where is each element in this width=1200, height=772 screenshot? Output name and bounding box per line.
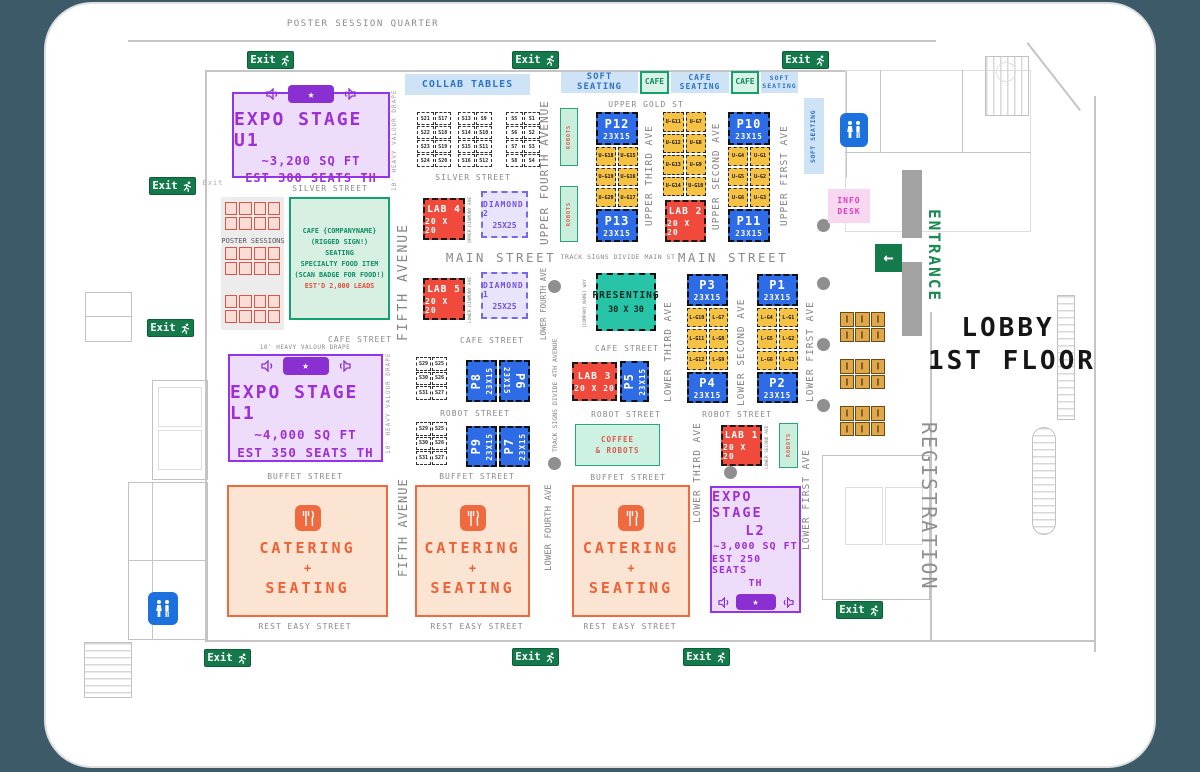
exit-label: Exit <box>250 54 275 66</box>
booth-p12: P1223X15 <box>596 112 638 145</box>
lower-fourth-ave-label: LOWER FOURTH AVE <box>544 495 554 561</box>
rooms-left <box>85 292 132 342</box>
info-desk-label: DESK <box>837 207 860 216</box>
booth-name: P9 <box>469 438 483 454</box>
junction-dot <box>724 466 737 479</box>
lab-name: LAB 1 <box>725 430 759 441</box>
booth-S24: S24 <box>417 154 434 167</box>
poster-board <box>239 217 251 230</box>
booth-size: 23X15 <box>764 293 792 302</box>
speaker-icon <box>338 360 351 372</box>
booth-U-G15: U-G15 <box>618 147 638 166</box>
booth-lab1: LAB 120 X 20 <box>721 425 762 466</box>
robot-street-label: ROBOT STREET <box>702 410 772 419</box>
booth-S23: S23 <box>417 140 434 153</box>
booth-p5: P523X15 <box>620 361 649 402</box>
upper-second-ave-label: UPPER SECOND AVE <box>711 118 722 234</box>
booth-p8: P823X15 <box>466 360 497 402</box>
booth-name: P2 <box>769 376 785 390</box>
poster-board <box>254 262 266 275</box>
booth-size: 23X15 <box>502 367 511 395</box>
speaker-icon <box>261 360 274 372</box>
junction-dot <box>817 277 830 290</box>
lobby-line2: 1ST FLOOR <box>928 345 1088 378</box>
booth-diamond1: DIAMOND 125X25 <box>481 272 528 319</box>
exit-sign: Exit <box>512 51 559 69</box>
robots-zone: ROBOTS <box>560 186 578 242</box>
lobby-line1: LOBBY <box>928 312 1088 345</box>
catering-plus: + <box>627 561 634 575</box>
poster-board <box>254 217 266 230</box>
expo-stage-l2: EXPO STAGE L2 ~3,000 SQ FT EST 250 SEATS… <box>710 486 801 613</box>
lower-diamond-ave-label: LOWER DIAMOND AVE <box>468 278 473 322</box>
catering-zone: CATERING + SEATING <box>572 485 690 617</box>
s-booth-grid-robot-a: S29S25S30S26S31S27 <box>416 357 447 400</box>
g-booth-grid-upper-left: U-G18U-G15U-G19U-G16U-G20U-G17 <box>596 147 638 207</box>
poster-board <box>268 202 280 215</box>
poster-board <box>225 295 237 308</box>
lower-second-ave-label: LOWER SECOND AVE <box>765 424 770 470</box>
speaker-icon <box>782 597 794 608</box>
poster-grid <box>225 202 280 230</box>
stage-sqft: ~4,000 SQ FT <box>254 427 356 442</box>
cafe-seating-label: CAFE SEATING <box>671 74 729 92</box>
exit-sign: Exit <box>147 319 194 337</box>
booth-p3: P323X15 <box>687 274 728 306</box>
rest-easy-street-label: REST EASY STREET <box>258 622 351 631</box>
catering-label: CATERING <box>259 539 355 557</box>
booth-S31: S31 <box>416 451 431 465</box>
booth-U-G4: U-G4 <box>728 147 748 166</box>
cafe-leads-line: EST'D 2,000 LEADS <box>305 282 375 290</box>
s-booth-grid-robot-b: S29S25S30S26S31S27 <box>416 422 447 465</box>
expo-stage-l1: ★ EXPO STAGE L1 ~4,000 SQ FT EST 350 SEA… <box>228 354 383 462</box>
running-man-icon <box>180 323 191 334</box>
soft-seating-label: SOFT SEATING <box>561 73 638 93</box>
booth-p1: P123X15 <box>757 274 798 306</box>
poster-board <box>254 202 266 215</box>
coffee-robots-zone: COFFEE& ROBOTS <box>575 424 660 466</box>
cafe-zone: CAFE <box>731 71 759 94</box>
booth-S27: S27 <box>432 451 447 465</box>
running-man-icon <box>182 181 193 192</box>
booth-S6: S6 <box>506 126 523 139</box>
upper-diamond-ave-label: UPPER DIAMOND AVE <box>468 198 473 242</box>
booth-U-G1: U-G1 <box>750 147 770 166</box>
booth-S26: S26 <box>432 437 447 451</box>
booth-S25: S25 <box>432 357 447 371</box>
robots-label: ROBOTS <box>566 202 572 226</box>
buffet-street-label: BUFFET STREET <box>590 473 666 482</box>
robots-zone: ROBOTS <box>779 423 798 468</box>
running-man-icon <box>545 652 556 663</box>
poster-board <box>225 247 237 260</box>
upper-fourth-avenue-label: UPPER FOURTH AVENUE <box>538 102 551 244</box>
robot-street-label: ROBOT STREET <box>591 410 661 419</box>
booth-U-G8: U-G8 <box>686 134 707 154</box>
lower-first-ave-label: LOWER FIRST AVE <box>801 452 812 548</box>
booth-S7: S7 <box>506 140 523 153</box>
exit-label: Exit <box>839 604 864 616</box>
booth-diamond2: DIAMOND 225X25 <box>481 191 528 238</box>
gold-booth <box>840 422 854 437</box>
poster-sessions-label: POSTER SESSIONS <box>221 237 284 245</box>
booth-U-G10: U-G10 <box>686 177 707 197</box>
booth-S20: S20 <box>435 154 452 167</box>
restroom-sign <box>840 113 868 147</box>
booth-size: 23X15 <box>764 391 792 400</box>
catering-icon <box>295 505 321 531</box>
booth-presenting: PRESENTING30 X 30 <box>596 273 656 331</box>
s-booth-grid-silver-c: S5S1S6S2S7S3S8S4 <box>506 112 540 167</box>
restroom-icon <box>154 599 172 619</box>
booth-name: P10 <box>737 117 762 131</box>
silver-street-label: SILVER STREET <box>435 173 511 182</box>
s-booth-grid-silver-b: S13S9S14S10S15S11S16S12 <box>458 112 492 167</box>
gold-booth <box>855 375 869 390</box>
gold-booth <box>840 359 854 374</box>
booth-U-G18: U-G18 <box>596 147 616 166</box>
wall <box>128 560 208 561</box>
info-desk-label: INFO <box>837 196 860 205</box>
s-booth-grid-silver-a: S21S17S22S18S23S19S24S20 <box>417 112 451 167</box>
booth-S18: S18 <box>435 126 452 139</box>
stage-banner: ★ <box>718 594 794 610</box>
running-man-icon <box>869 605 880 616</box>
booth-name: P12 <box>605 117 630 131</box>
booth-p10: P1023X15 <box>728 112 770 145</box>
booth-size: 23X15 <box>694 293 722 302</box>
exit-sign: Exit <box>782 51 829 69</box>
booth-p6: P623X15 <box>499 360 530 402</box>
poster-board <box>268 295 280 308</box>
cafe-line: SPECIALTY FOOD ITEM <box>301 260 379 268</box>
gold-booth <box>855 312 869 327</box>
expo-stage-u1: ★ EXPO STAGE U1 ~3,200 SQ FT EST 300 SEA… <box>232 92 390 178</box>
poster-grid <box>225 247 280 275</box>
stage-seats: EST 300 SEATS TH <box>245 171 377 185</box>
cafe-label: CAFE <box>645 78 664 87</box>
wall <box>962 70 963 152</box>
poster-session-quarter-label: POSTER SESSION QUARTER <box>287 19 439 29</box>
star-icon: ★ <box>752 597 758 608</box>
catering-label: CATERING <box>583 539 679 557</box>
booth-size: 23X15 <box>735 229 763 238</box>
stage-sqft: ~3,200 SQ FT <box>262 154 361 168</box>
running-man-icon <box>280 55 291 66</box>
exit-sign: Exit <box>683 648 730 666</box>
booth-S26: S26 <box>432 372 447 386</box>
poster-board <box>225 310 237 323</box>
company-way-label: [COMPANY_NAME] WAY <box>583 277 588 331</box>
booth-S8: S8 <box>506 154 523 167</box>
wall <box>205 640 935 642</box>
booth-S29: S29 <box>416 357 431 371</box>
booth-U-G3: U-G3 <box>750 188 770 207</box>
poster-grid <box>225 295 280 323</box>
catering-icon <box>460 505 486 531</box>
wall <box>128 40 936 42</box>
soft-seating-vertical-zone: SOFT SEATING <box>804 98 824 174</box>
gold-booth <box>840 328 854 343</box>
gold-booth <box>855 406 869 421</box>
lab-size: 20 X 20 <box>425 297 463 315</box>
cafe-line: (RIGGED SIGN!) <box>311 238 368 246</box>
cafe-label: CAFE <box>735 78 754 87</box>
escalator <box>1032 427 1056 535</box>
entrance-arrow-sign: ← <box>875 244 902 272</box>
corridor-bar <box>902 262 922 336</box>
cafe-street-label: CAFE STREET <box>595 344 659 353</box>
presenting-size: 30 X 30 <box>608 305 644 315</box>
gold-booth <box>871 422 885 437</box>
gold-booth <box>871 406 885 421</box>
cafe-line: (SCAN BADGE FOR FOOD!) <box>294 271 384 279</box>
gold-booth-cluster <box>840 359 885 389</box>
gold-booth <box>871 328 885 343</box>
rest-easy-street-label: REST EASY STREET <box>430 622 523 631</box>
booth-size: 23X15 <box>638 368 647 396</box>
fifth-avenue-label: FIFTH AVENUE <box>396 226 411 338</box>
exit-sign: Exit <box>247 51 294 69</box>
booth-size: 23X15 <box>603 229 631 238</box>
coffee-label: & ROBOTS <box>595 446 639 455</box>
drape-note: 10' HEAVY VALOUR DRAPE <box>385 358 392 448</box>
stairs-circle <box>996 62 1016 82</box>
exit-label: Exit <box>515 651 540 663</box>
gold-booth <box>855 359 869 374</box>
star-icon: ★ <box>308 88 315 101</box>
coffee-label: COFFEE <box>601 435 634 444</box>
booth-p9: P923X15 <box>466 426 497 467</box>
booth-S15: S15 <box>458 140 475 153</box>
lower-third-ave-label: LOWER THIRD AVE <box>663 303 674 401</box>
exit-label: Exit <box>152 180 177 192</box>
wall <box>845 152 1031 153</box>
gold-booth <box>871 312 885 327</box>
booth-S22: S22 <box>417 126 434 139</box>
booth-U-G11: U-G11 <box>663 112 684 132</box>
star-icon: ★ <box>302 359 309 372</box>
poster-board <box>268 262 280 275</box>
exit-sign: Exit <box>836 601 883 619</box>
info-desk: INFODESK <box>828 189 870 223</box>
booth-name: P7 <box>502 438 516 454</box>
junction-dot <box>817 399 830 412</box>
booth-S17: S17 <box>435 112 452 125</box>
gold-booth-cluster <box>840 312 885 342</box>
robots-zone: ROBOTS <box>560 108 578 166</box>
lab-name: LAB 2 <box>669 206 703 217</box>
soft-seating-label: SOFT SEATING <box>810 110 817 163</box>
main-street-label: MAIN STREET <box>678 250 788 265</box>
registration-label: REGISTRATION <box>917 408 941 604</box>
booth-L-G2: L-G2 <box>779 329 799 348</box>
booth-S30: S30 <box>416 372 431 386</box>
booth-S10: S10 <box>476 126 493 139</box>
booth-p2: P223X15 <box>757 372 798 403</box>
booth-S27: S27 <box>432 386 447 400</box>
booth-p7: P723X15 <box>499 426 530 467</box>
booth-name: P5 <box>622 373 636 389</box>
poster-board <box>268 247 280 260</box>
drape-note: 10' HEAVY VALOUR DRAPE <box>260 344 350 351</box>
restroom-icon <box>845 120 863 140</box>
stage-banner: ★ <box>261 357 351 375</box>
exit-label: Exit <box>150 322 175 334</box>
stage-seats: EST 250 SEATS <box>712 554 799 576</box>
booth-lab3: LAB 320 X 20 <box>572 362 617 401</box>
upper-first-ave-label: UPPER FIRST AVE <box>779 118 790 234</box>
lab-size: 20 X 20 <box>574 384 615 393</box>
lower-third-ave-label: LOWER THIRD AVE <box>692 424 703 522</box>
catering-zone: CATERING + SEATING <box>415 485 530 617</box>
door <box>845 487 883 545</box>
drape-note: 10' HEAVY VALOUR DRAPE <box>391 98 398 182</box>
booth-L-G1: L-G1 <box>779 308 799 327</box>
cafe-line: CAFE {COMPANYNAME} <box>303 227 377 235</box>
booth-U-G5: U-G5 <box>728 168 748 187</box>
poster-board <box>268 310 280 323</box>
stage-seats2: TH <box>748 578 762 589</box>
g-booth-grid-upper-right: U-G4U-G1U-G5U-G2U-G6U-G3 <box>728 147 770 207</box>
poster-board <box>239 295 251 308</box>
booth-S11: S11 <box>476 140 493 153</box>
fifth-avenue-label: FIFTH AVENUE <box>396 495 410 561</box>
booth-U-G6: U-G6 <box>728 188 748 207</box>
exit-label: Exit <box>686 651 711 663</box>
stage-seats: EST 350 SEATS TH <box>237 445 373 460</box>
restroom-sign <box>148 592 178 625</box>
poster-board <box>239 310 251 323</box>
poster-board <box>254 310 266 323</box>
booth-S25: S25 <box>432 422 447 436</box>
booth-S21: S21 <box>417 112 434 125</box>
catering-icon <box>618 505 644 531</box>
booth-p11: P1123X15 <box>728 209 770 242</box>
booth-U-G9: U-G9 <box>686 155 707 175</box>
gold-booth <box>855 422 869 437</box>
poster-board <box>225 262 237 275</box>
cafe-zone: CAFE <box>640 71 669 94</box>
booth-L-G8: L-G8 <box>709 329 729 348</box>
speaker-icon <box>718 597 730 608</box>
booth-S31: S31 <box>416 386 431 400</box>
wall <box>85 316 132 317</box>
gold-booth <box>840 406 854 421</box>
booth-U-G14: U-G14 <box>663 177 684 197</box>
booth-name: P11 <box>737 214 762 228</box>
booth-S30: S30 <box>416 437 431 451</box>
booth-U-G17: U-G17 <box>618 188 638 207</box>
exit-small-label: Exit <box>203 179 224 187</box>
soft-seating-zone: SOFT SEATING <box>761 72 798 93</box>
speaker-icon <box>343 88 356 100</box>
g-booth-grid-upper-mid: U-G11U-G7U-G12U-G8U-G13U-G9U-G14U-G10 <box>663 112 706 196</box>
booth-S13: S13 <box>458 112 475 125</box>
exit-sign: Exit <box>204 649 251 667</box>
booth-L-G3: L-G3 <box>779 351 799 370</box>
silver-street-label: SILVER STREET <box>292 184 368 193</box>
gold-booth-cluster <box>840 406 885 436</box>
booth-L-G10: L-G10 <box>687 308 707 327</box>
booth-p13: P1323X15 <box>596 209 638 242</box>
exit-sign: Exit <box>149 177 196 195</box>
catering-plus: + <box>469 561 476 575</box>
wall <box>930 640 1096 642</box>
diamond-size: 25X25 <box>492 221 516 230</box>
soft-seating-label: SOFT SEATING <box>761 75 798 89</box>
cafe-street-label: CAFE STREET <box>328 335 392 344</box>
lab-size: 20 X 20 <box>667 219 704 237</box>
booth-lab4: LAB 420 X 20 <box>423 198 465 240</box>
booth-L-G12: L-G12 <box>687 351 707 370</box>
catering-plus: + <box>304 561 311 575</box>
main-street-note: TRACK SIGNS DIVIDE MAIN ST <box>561 253 676 261</box>
wall <box>880 70 881 152</box>
elevator-cab <box>158 387 202 427</box>
stage-banner: ★ <box>266 85 356 103</box>
cafe-company-zone: CAFE {COMPANYNAME} (RIGGED SIGN!) SEATIN… <box>289 197 390 320</box>
poster-board <box>225 202 237 215</box>
catering-label: CATERING <box>424 539 520 557</box>
booth-U-G12: U-G12 <box>663 134 684 154</box>
cafe-street-label: CAFE STREET <box>460 336 524 345</box>
catering-label: SEATING <box>265 579 349 597</box>
cafe-seating-zone: CAFE SEATING <box>671 72 729 93</box>
speaker-icon <box>266 88 279 100</box>
booth-U-G19: U-G19 <box>596 168 616 187</box>
booth-S12: S12 <box>476 154 493 167</box>
poster-board <box>254 247 266 260</box>
poster-board <box>254 295 266 308</box>
main-street-label: MAIN STREET <box>446 250 556 265</box>
poster-board <box>268 217 280 230</box>
buffet-street-label: BUFFET STREET <box>439 472 515 481</box>
booth-U-G16: U-G16 <box>618 168 638 187</box>
lab-name: LAB 3 <box>578 371 612 382</box>
collab-tables-zone: COLLAB TABLES <box>405 74 530 95</box>
poster-board <box>239 247 251 260</box>
running-man-icon <box>545 55 556 66</box>
corridor-bar <box>902 170 922 238</box>
exit-label: Exit <box>515 54 540 66</box>
exit-sign: Exit <box>512 648 559 666</box>
presenting-title: PRESENTING <box>592 290 659 301</box>
booth-L-G9: L-G9 <box>709 351 729 370</box>
booth-size: 23X15 <box>603 132 631 141</box>
junction-dot <box>817 338 830 351</box>
diamond-size: 25X25 <box>492 302 516 311</box>
booth-size: 23X15 <box>694 391 722 400</box>
booth-S16: S16 <box>458 154 475 167</box>
cafe-line: SEATING <box>325 249 354 257</box>
upper-gold-street-label: UPPER GOLD ST <box>608 100 684 109</box>
booth-S9: S9 <box>476 112 493 125</box>
running-man-icon <box>716 652 727 663</box>
booth-L-G7: L-G7 <box>709 308 729 327</box>
upper-third-ave-label: UPPER THIRD AVE <box>644 118 655 234</box>
booth-S19: S19 <box>435 140 452 153</box>
stage-star-banner: ★ <box>736 594 776 610</box>
elevator-cab <box>158 430 202 470</box>
booth-lab2: LAB 220 X 20 <box>665 200 706 242</box>
booth-S14: S14 <box>458 126 475 139</box>
buffet-street-label: BUFFET STREET <box>267 472 343 481</box>
g-booth-grid-lower-right: L-G4L-G1L-G5L-G2L-G6L-G3 <box>757 308 798 370</box>
stage-title2: L2 <box>745 523 765 539</box>
lab-size: 20 X 20 <box>425 217 463 235</box>
